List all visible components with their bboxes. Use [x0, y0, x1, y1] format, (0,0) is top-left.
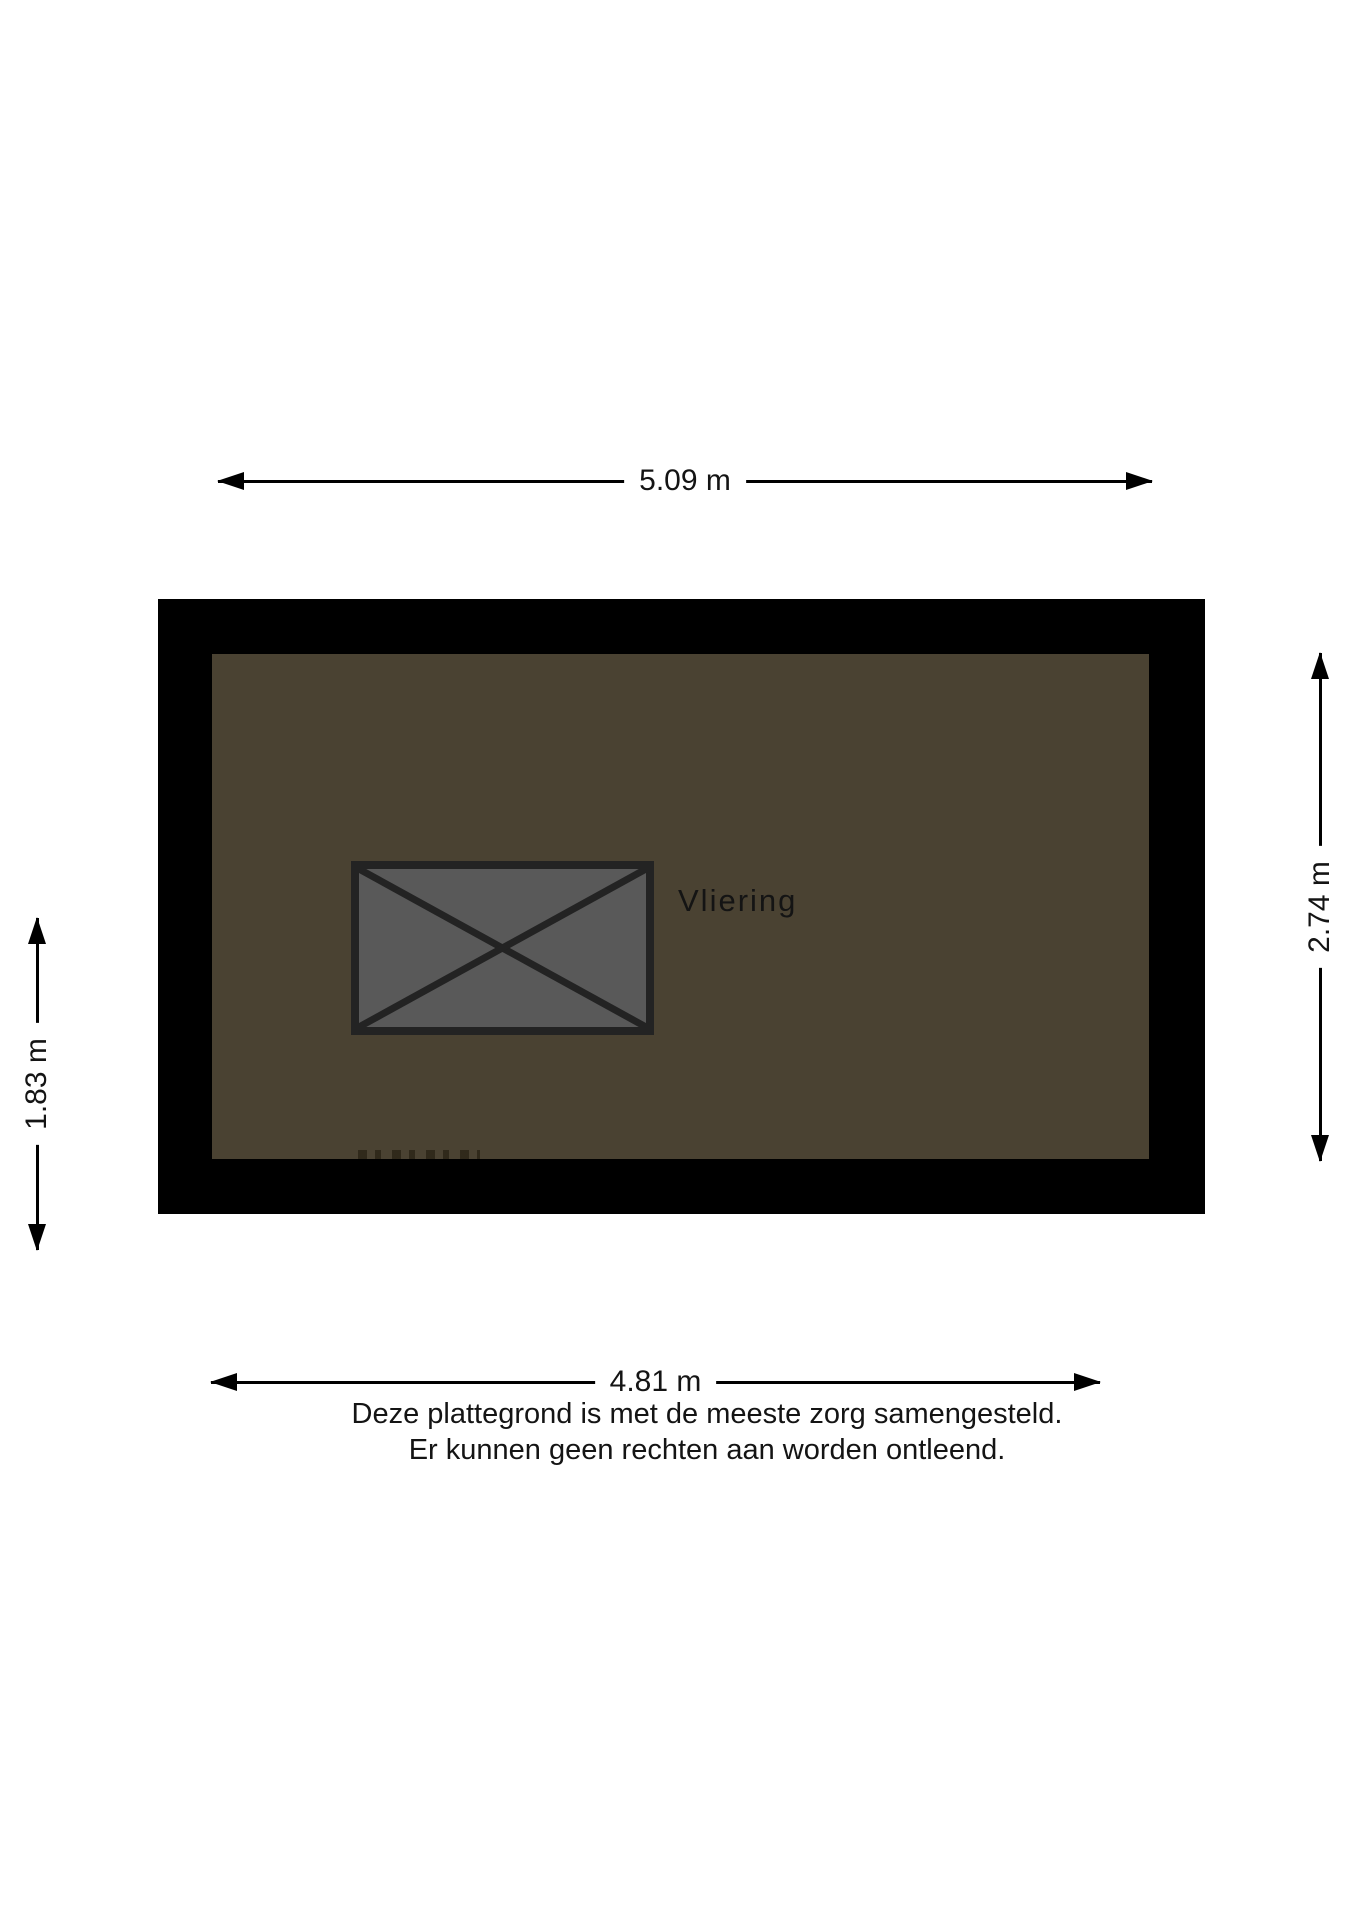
arrow-left-icon [210, 1373, 237, 1391]
arrow-up-icon [28, 917, 46, 944]
room-label: Vliering [678, 882, 797, 919]
arrow-up-icon [1311, 652, 1329, 679]
arrow-left-icon [217, 472, 244, 490]
arrow-right-icon [1074, 1373, 1101, 1391]
clipped-label-remnant [358, 1150, 480, 1159]
dimension-top-label: 5.09 m [624, 462, 746, 500]
disclaimer-line-1: Deze plattegrond is met de meeste zorg s… [28, 1396, 1358, 1432]
disclaimer-line-2: Er kunnen geen rechten aan worden ontlee… [28, 1432, 1358, 1468]
loft-hatch-opening [351, 861, 654, 1035]
dimension-right-label: 2.74 m [1301, 846, 1339, 968]
arrow-down-icon [28, 1224, 46, 1251]
disclaimer: Deze plattegrond is met de meeste zorg s… [28, 1396, 1358, 1468]
cross-icon [359, 869, 646, 1027]
dimension-left-label: 1.83 m [18, 1023, 56, 1145]
arrow-down-icon [1311, 1135, 1329, 1162]
arrow-right-icon [1126, 472, 1153, 490]
